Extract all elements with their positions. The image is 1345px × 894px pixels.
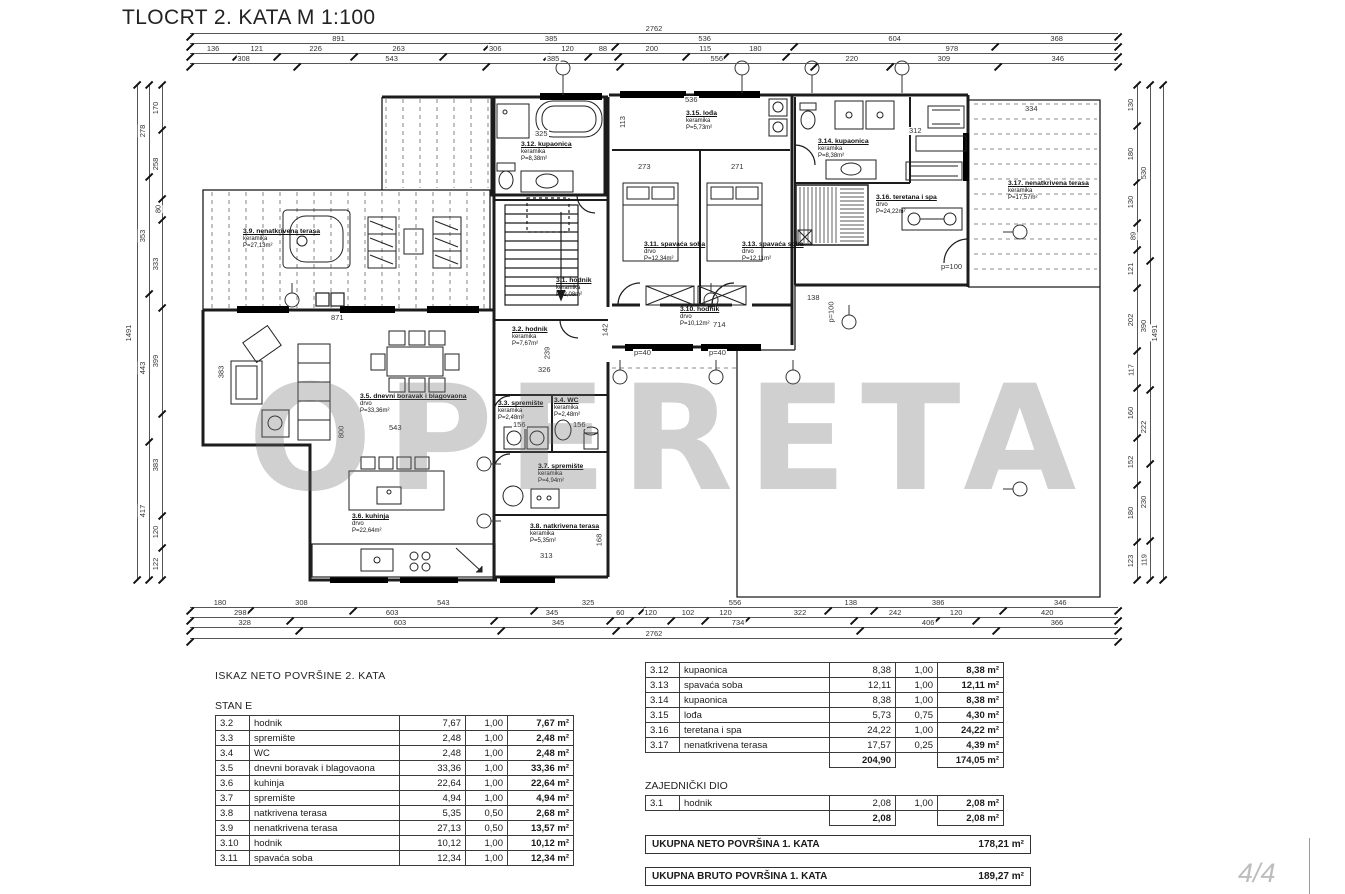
dim-label: 543	[388, 424, 403, 432]
dim-segment: 121	[236, 44, 277, 54]
total-net-label: UKUPNA NETO POVRŠINA 1. KATA	[652, 839, 820, 850]
table-heading: ISKAZ NETO POVRŠINE 2. KATA	[215, 670, 574, 682]
dim-segment: 242	[854, 608, 936, 618]
table-row: 3.13spavaća soba12,111,0012,11 m²	[646, 678, 1004, 693]
dim-label: p=100	[940, 263, 963, 271]
room-label: 3.14. kupaonicakeramikaP=8,38m²	[818, 138, 869, 161]
room-label: 3.16. teretana i spadrvoP=24,22m²	[876, 194, 937, 217]
dim-label: 312	[908, 127, 923, 135]
room-label: 3.10. hodnikdrvoP=10,12m²	[680, 306, 719, 329]
dim-label: 800	[337, 425, 345, 440]
dim-segment: 136	[190, 44, 236, 54]
room-label: 3.11. spavaća sobadrvoP=12,34m²	[644, 241, 705, 264]
dim-segment: 891	[190, 34, 487, 44]
dim-segment: 89	[1128, 223, 1138, 251]
dim-chain-right-detail: 13018013089121202117160152180123	[1128, 85, 1138, 580]
dim-segment: 278	[140, 85, 150, 177]
dim-chain-bottom-1: 180308543325556138386346	[190, 598, 1118, 608]
dim-segment: 443	[140, 294, 150, 441]
dim-label: 325	[534, 130, 549, 138]
dim-segment: 120	[936, 608, 976, 618]
table-row: 3.10hodnik10,121,0010,12 m²	[216, 836, 574, 851]
dim-segment: 386	[874, 598, 1003, 608]
dim-segment: 80	[153, 199, 163, 220]
dim-segment: 417	[140, 442, 150, 580]
table-row: 3.4WC2,481,002,48 m²	[216, 746, 574, 761]
dim-segment: 122	[153, 548, 163, 580]
dim-segment: 180	[1128, 485, 1138, 541]
room-label: 3.4. WCkeramikaP=2,48m²	[554, 397, 580, 420]
dim-segment: 406	[860, 618, 995, 628]
table-row: 3.17nenatkrivena terasa17,570,254,39 m²	[646, 738, 1004, 753]
dim-label: 113	[619, 115, 627, 129]
room-label: 3.5. dnevni boravak i blagovaonadrvoP=33…	[360, 393, 467, 416]
room-label: 3.13. spavaća sobadrvoP=12,11m²	[742, 241, 804, 264]
room-label: 3.1. hodnikkeramikaP=2,08m²	[556, 277, 592, 300]
dim-segment: 603	[290, 608, 493, 618]
dim-segment: 130	[1128, 85, 1138, 126]
dim-segment: 120	[630, 608, 670, 618]
dim-segment: 230	[1141, 464, 1151, 540]
dim-chain-bottom-3: 328603345734406366	[190, 618, 1118, 628]
net-area-table-block: ISKAZ NETO POVRŠINE 2. KATA STAN E 3.2ho…	[215, 670, 574, 866]
dim-label: 142	[601, 323, 609, 338]
dim-chain-left-overall: 1491	[128, 85, 138, 580]
dim-segment: 152	[1128, 438, 1138, 486]
dim-segment: 200	[618, 44, 686, 54]
dim-segment: 180	[1128, 126, 1138, 182]
dim-chain-right-overall: 1491	[1154, 85, 1164, 580]
dim-segment: 734	[616, 618, 861, 628]
dim-segment: 298	[190, 608, 290, 618]
dim-segment: 536	[615, 34, 794, 44]
dim-chain-top-1: 891385536604368	[190, 34, 1118, 44]
dim-segment: 346	[998, 54, 1118, 64]
dim-segment: 530	[1141, 85, 1151, 261]
table-row: 3.8natkrivena terasa5,350,502,68 m²	[216, 806, 574, 821]
dim-chain-bottom-2: 29860334560120102120322242120420	[190, 608, 1118, 618]
room-label: 3.6. kuhinjadrvoP=22,64m²	[352, 513, 389, 536]
room-label: 3.3. spremištekeramikaP=2,48m²	[498, 400, 543, 423]
table-row: 3.1hodnik2,081,002,08 m²	[646, 796, 1004, 811]
room-label: 3.17. nenatkrivena terasakeramikaP=17,57…	[1008, 180, 1089, 203]
dim-chain-left-detail: 17025880333399383120122	[153, 85, 163, 580]
table-row: 3.15lođa5,730,754,30 m²	[646, 708, 1004, 723]
dim-segment: 123	[1128, 542, 1138, 580]
dim-chain-bottom-overall: 2762	[190, 629, 1118, 639]
dim-segment: 543	[297, 54, 486, 64]
table-row: 3.3spremište2,481,002,48 m²	[216, 731, 574, 746]
dim-chain-top-3: 308543385556220309346	[190, 54, 1118, 64]
dim-segment: 202	[1128, 288, 1138, 351]
dim-label: 871	[330, 314, 345, 322]
table-subheading: ZAJEDNIČKI DIO	[645, 780, 1031, 792]
page-number: 4/4	[1238, 858, 1276, 889]
dim-segment: 306	[443, 44, 547, 54]
room-label: 3.15. lođakeramikaP=5,73m²	[686, 110, 717, 133]
dim-label: 138	[806, 294, 821, 302]
area-table-stan-e: 3.2hodnik7,671,007,67 m²3.3spremište2,48…	[215, 715, 574, 866]
dim-segment: 88	[588, 44, 618, 54]
room-label: 3.12. kupaonicakeramikaP=8,38m²	[521, 141, 572, 164]
dim-segment: 160	[1128, 388, 1138, 438]
dim-segment: 102	[671, 608, 705, 618]
table-row: 3.6kuhinja22,641,0022,64 m²	[216, 776, 574, 791]
area-table-continued: 3.12kupaonica8,381,008,38 m²3.13spavaća …	[645, 662, 1004, 768]
dim-segment: 368	[995, 34, 1118, 44]
dim-segment: 366	[996, 618, 1118, 628]
dim-label: p=40	[633, 349, 652, 357]
dim-segment: 328	[190, 618, 299, 628]
area-table-common: 3.1hodnik2,081,002,08 m² 2,082,08 m²	[645, 795, 1004, 826]
dim-segment: 263	[354, 44, 443, 54]
table-row: 3.14kupaonica8,381,008,38 m²	[646, 693, 1004, 708]
dim-segment: 115	[686, 44, 725, 54]
dim-segment: 556	[642, 598, 827, 608]
table-row: 204,90174,05 m²	[646, 753, 1004, 768]
dim-segment: 120	[547, 44, 588, 54]
table-row: 3.16teretana i spa24,221,0024,22 m²	[646, 723, 1004, 738]
dim-segment: 117	[1128, 351, 1138, 388]
dim-segment: 309	[890, 54, 998, 64]
page-title: TLOCRT 2. KATA M 1:100	[122, 6, 376, 30]
table-subheading: STAN E	[215, 700, 574, 712]
dim-segment: 978	[786, 44, 1118, 54]
dim-segment: 543	[353, 598, 534, 608]
dim-segment: 308	[250, 598, 353, 608]
total-net-value: 178,21 m²	[978, 839, 1024, 850]
room-label: 3.9. nenatkrivena terasakeramikaP=27,13m…	[243, 228, 320, 251]
dim-segment: 556	[620, 54, 813, 64]
dim-label: 273	[637, 163, 652, 171]
dim-segment: 2762	[190, 629, 1118, 639]
total-gross-label: UKUPNA BRUTO POVRŠINA 1. KATA	[652, 871, 827, 882]
dim-segment: 383	[153, 414, 163, 516]
dim-segment: 385	[487, 34, 615, 44]
table-row: 3.11spavaća soba12,341,0012,34 m²	[216, 851, 574, 866]
table-row: 3.5dnevni boravak i blagovaona33,361,003…	[216, 761, 574, 776]
dim-segment: 258	[153, 130, 163, 198]
dim-segment: 322	[746, 608, 855, 618]
dim-label: 383	[217, 365, 225, 380]
dim-segment: 603	[299, 618, 500, 628]
dim-segment: 180	[190, 598, 250, 608]
dim-segment: 346	[1003, 598, 1118, 608]
dim-label: p=100	[828, 300, 836, 323]
dim-label: 334	[1024, 105, 1039, 113]
dim-segment: 220	[814, 54, 891, 64]
dim-segment: 130	[1128, 182, 1138, 223]
dim-segment: 121	[1128, 250, 1138, 288]
dim-segment: 353	[140, 177, 150, 294]
dim-segment: 1491	[128, 85, 138, 580]
total-gross-area-box: UKUPNA BRUTO POVRŠINA 1. KATA 189,27 m²	[645, 867, 1031, 886]
table-row: 3.12kupaonica8,381,008,38 m²	[646, 663, 1004, 678]
table-row: 2,082,08 m²	[646, 811, 1004, 826]
dim-segment: 119	[1141, 541, 1151, 581]
dim-segment: 333	[153, 220, 163, 308]
dim-label: 156	[572, 421, 587, 429]
dim-segment: 1491	[1154, 85, 1164, 580]
dim-segment: 60	[610, 608, 630, 618]
dim-label: 271	[730, 163, 745, 171]
dim-segment: 222	[1141, 390, 1151, 464]
dim-segment: 385	[486, 54, 620, 64]
dim-segment: 226	[277, 44, 354, 54]
room-label: 3.8. natkrivena terasakeramikaP=5,35m²	[530, 523, 599, 546]
dim-segment: 120	[153, 516, 163, 548]
dim-label: 313	[539, 552, 554, 560]
dim-label: 326	[537, 366, 552, 374]
dim-label: 536	[684, 96, 699, 104]
table-row: 3.9nenatkrivena terasa27,130,5013,57 m²	[216, 821, 574, 836]
room-label: 3.2. hodnikkeramikaP=7,67m²	[512, 326, 548, 349]
net-area-table-block-right: 3.12kupaonica8,381,008,38 m²3.13spavaća …	[645, 662, 1031, 886]
dim-segment: 399	[153, 308, 163, 414]
dim-segment: 604	[794, 34, 995, 44]
total-gross-value: 189,27 m²	[978, 871, 1024, 882]
total-net-area-box: UKUPNA NETO POVRŠINA 1. KATA 178,21 m²	[645, 835, 1031, 854]
dim-chain-left-mid: 278353443417	[140, 85, 150, 580]
dim-segment: 345	[494, 608, 610, 618]
dim-segment: 170	[153, 85, 163, 130]
dim-segment: 308	[190, 54, 297, 64]
table-row: 3.2hodnik7,671,007,67 m²	[216, 716, 574, 731]
dim-segment: 120	[705, 608, 745, 618]
dim-segment: 180	[725, 44, 786, 54]
table-row: 3.7spremište4,941,004,94 m²	[216, 791, 574, 806]
dim-segment: 325	[534, 598, 642, 608]
dim-chain-top-2: 13612122626330612088200115180978	[190, 44, 1118, 54]
dim-segment: 420	[976, 608, 1118, 618]
dim-segment: 138	[828, 598, 874, 608]
dim-segment: 345	[501, 618, 616, 628]
dim-label: p=40	[708, 349, 727, 357]
room-label: 3.7. spremištekeramikaP=4,94m²	[538, 463, 583, 486]
drawing-sheet: TLOCRT 2. KATA M 1:100	[0, 0, 1345, 894]
sheet-border-line	[1309, 838, 1310, 894]
